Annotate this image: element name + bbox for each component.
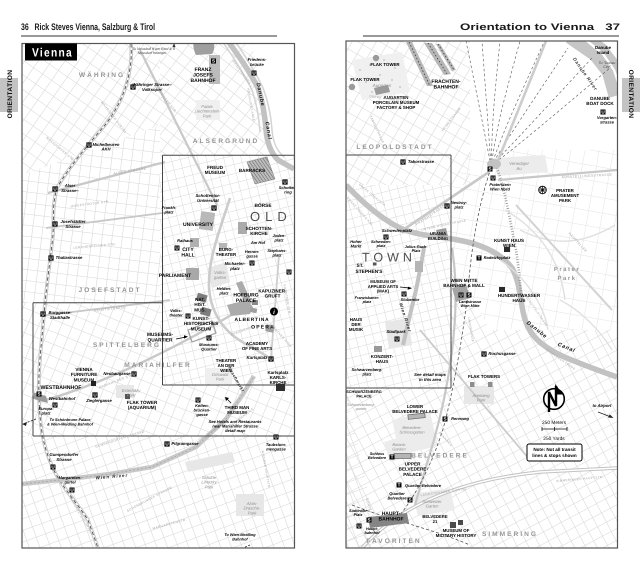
svg-text:HoherMarkt: HoherMarkt (350, 239, 362, 248)
svg-text:S: S (367, 518, 370, 523)
svg-text:S: S (212, 59, 215, 64)
svg-text:Rennweg: Rennweg (451, 416, 469, 421)
svg-text:Augarten: Augarten (372, 83, 392, 88)
svg-text:BotanicGarden: BotanicGarden (392, 442, 406, 451)
svg-text:Stadtpark: Stadtpark (386, 329, 406, 334)
svg-text:Park: Park (557, 275, 576, 282)
svg-text:Thaliastrasse: Thaliastrasse (56, 255, 83, 260)
svg-text:WÄHRING: WÄHRING (79, 71, 125, 79)
svg-text:TOWN: TOWN (362, 251, 416, 265)
svg-text:FLAK TOWER: FLAK TOWER (370, 62, 400, 67)
svg-text:BARRACKS: BARRACKS (239, 168, 265, 173)
svg-text:Museums-Quartier: Museums-Quartier (199, 342, 219, 351)
svg-text:CITYHALL: CITYHALL (181, 247, 194, 259)
svg-text:250 Meters: 250 Meters (542, 420, 567, 426)
svg-text:FREUDMUSEUM: FREUDMUSEUM (205, 165, 226, 175)
svg-text:T: T (391, 455, 394, 460)
svg-text:URANIABUILDING: URANIABUILDING (428, 231, 448, 241)
svg-text:Volks-theater: Volks-theater (169, 308, 183, 317)
svg-text:DanubeIsland: DanubeIsland (595, 45, 612, 55)
svg-text:Belvedere-Schlossgarten: Belvedere-Schlossgarten (399, 425, 425, 434)
svg-text:LEOPOLDSTADT: LEOPOLDSTADT (356, 144, 433, 151)
svg-text:ALSERGRUND: ALSERGRUND (193, 138, 260, 145)
svg-text:S: S (408, 498, 411, 503)
svg-text:FLAK TOWER: FLAK TOWER (350, 77, 380, 82)
svg-text:QuartierBelvedere: QuartierBelvedere (387, 491, 407, 500)
svg-text:T: T (398, 483, 401, 488)
svg-text:Prater: Prater (554, 266, 580, 273)
svg-text:WESTBAHNHOF: WESTBAHNHOF (41, 385, 82, 391)
svg-text:KarlsplatzKARLS-KIRCHE: KarlsplatzKARLS-KIRCHE (268, 370, 290, 385)
svg-text:lines & stops shown: lines & stops shown (532, 453, 577, 458)
svg-text:S: S (467, 293, 470, 298)
svg-text:Note: Not all transit: Note: Not all transit (533, 447, 576, 452)
svg-text:Taubstum-mengasse: Taubstum-mengasse (266, 442, 287, 451)
svg-text:ACADEMYOF FINE ARTS: ACADEMYOF FINE ARTS (242, 341, 272, 351)
svg-text:UNIVERSITY: UNIVERSITY (183, 222, 214, 228)
svg-text:LandstrasseWien Mitte: LandstrasseWien Mitte (459, 300, 481, 308)
svg-text:MARIAHILFER: MARIAHILFER (124, 362, 191, 369)
svg-text:Quartier-Belvedere: Quartier-Belvedere (405, 483, 442, 488)
svg-text:To Schönbrunn Palace& Wien-Mei: To Schönbrunn Palace& Wien-Meidling Bahn… (47, 418, 94, 426)
svg-text:Schottentor-Universität: Schottentor-Universität (196, 193, 221, 203)
svg-text:Orientation to Vienna 37: Orientation to Vienna 37 (460, 22, 620, 33)
svg-text:ORIENTATION: ORIENTATION (627, 70, 634, 119)
svg-text:Haupt-bahnhof: Haupt-bahnhof (365, 527, 381, 535)
svg-text:T: T (478, 256, 481, 261)
svg-text:MUSEUMS-QUARTIER: MUSEUMS-QUARTIER (147, 332, 174, 343)
svg-text:FLAK TOWER(AQUARIUM): FLAK TOWER(AQUARIUM) (127, 400, 158, 410)
svg-text:Am Hof: Am Hof (250, 240, 266, 245)
svg-text:Rochusgasse: Rochusgasse (488, 351, 516, 356)
svg-text:Volks-garten: Volks-garten (214, 270, 227, 280)
svg-text:S: S (37, 392, 40, 397)
svg-text:Rathaus: Rathaus (177, 238, 194, 243)
svg-text:SIMMERING: SIMMERING (482, 531, 538, 538)
svg-text:PARLIAMENT: PARLIAMENT (159, 273, 191, 279)
svg-text:250 Yards: 250 Yards (543, 436, 565, 442)
svg-text:NAT.HIST.MUS.: NAT.HIST.MUS. (194, 297, 205, 312)
svg-text:FAVORITEN: FAVORITEN (366, 538, 421, 545)
svg-text:Westbahnhof: Westbahnhof (49, 396, 76, 401)
svg-text:HOFBURGPALACE: HOFBURGPALACE (233, 293, 258, 305)
svg-text:S: S (488, 167, 491, 172)
svg-text:Vienna: Vienna (32, 46, 73, 60)
svg-text:SchlossBelvedere: SchlossBelvedere (368, 452, 386, 460)
svg-text:STEPHEN'S: STEPHEN'S (356, 269, 384, 275)
svg-text:Pilgramgasse: Pilgramgasse (171, 441, 199, 446)
svg-text:Schwedenplatz: Schwedenplatz (382, 228, 413, 233)
svg-text:JOSEFSTADT: JOSEFSTADT (78, 287, 141, 294)
svg-text:to Airport: to Airport (593, 403, 613, 408)
svg-text:PratersternWien Nord: PratersternWien Nord (489, 182, 511, 191)
svg-text:FRACHTEN-BAHNHOF: FRACHTEN-BAHNHOF (431, 79, 460, 91)
svg-text:Karlsplatz: Karlsplatz (247, 355, 269, 360)
svg-text:Zieglergasse: Zieglergasse (85, 398, 112, 403)
svg-text:S: S (443, 417, 446, 422)
svg-text:HAUPT-BAHNHOF: HAUPT-BAHNHOF (379, 511, 404, 523)
svg-text:36 Rick Steves Vienna, Salzb: 36 Rick Steves Vienna, Salzburg & Tirol (21, 22, 155, 33)
svg-text:ALBERTINA: ALBERTINA (235, 317, 270, 323)
svg-text:FLAK TOWERS: FLAK TOWERS (468, 374, 500, 379)
svg-text:Herren-gasse: Herren-gasse (245, 249, 260, 258)
svg-text:Burggasse-Stadthalle: Burggasse-Stadthalle (48, 310, 72, 320)
svg-text:OLD: OLD (250, 209, 292, 224)
svg-text:Taborstrasse: Taborstrasse (408, 159, 435, 164)
svg-text:ST.: ST. (357, 263, 364, 269)
svg-text:ORIENTATION: ORIENTATION (7, 70, 14, 119)
svg-text:BELVEDERE: BELVEDERE (411, 453, 469, 460)
svg-text:Radetzkyplatz: Radetzkyplatz (484, 255, 511, 260)
svg-text:BÖRSE: BÖRSE (254, 202, 272, 209)
